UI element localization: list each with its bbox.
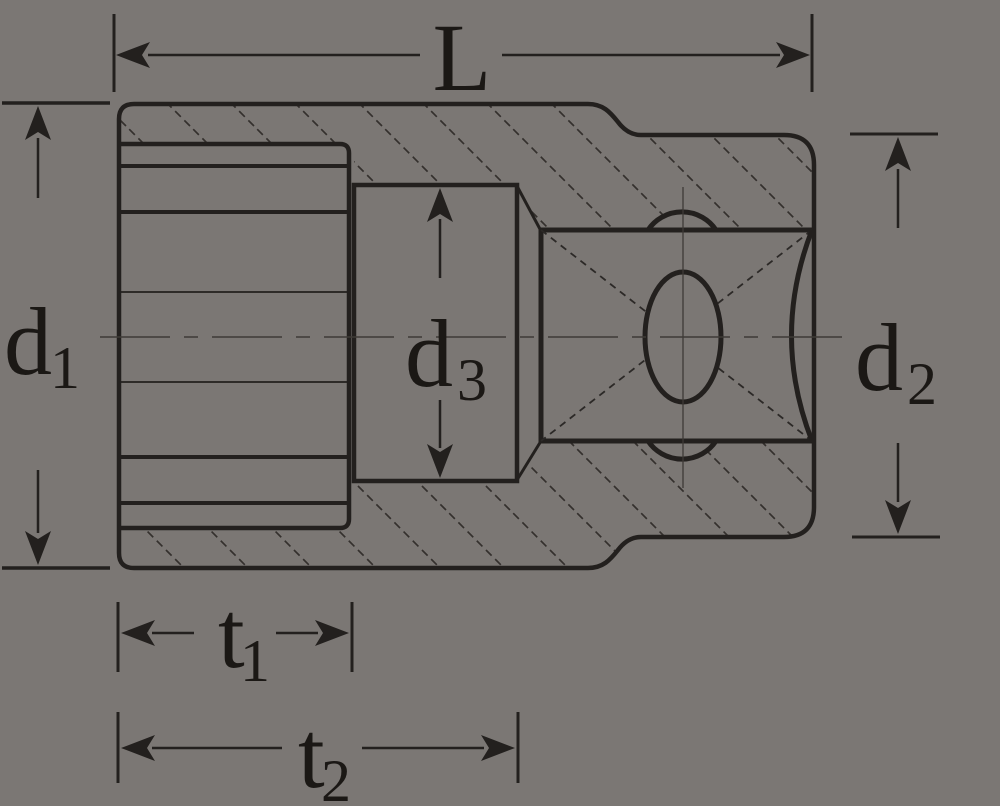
t2-label-sub: 2 [321, 748, 351, 806]
technical-drawing: L d 1 d 3 d 2 t 1 [0, 0, 1000, 806]
d1-label-sub: 1 [50, 335, 80, 401]
t1-label-sub: 1 [240, 628, 270, 694]
d1-label: d [4, 288, 52, 395]
L-label: L [433, 4, 492, 111]
d2-label: d [855, 304, 903, 411]
d3-label: d [405, 300, 453, 407]
d2-label-sub: 2 [907, 351, 937, 417]
d3-label-sub: 3 [457, 347, 487, 413]
